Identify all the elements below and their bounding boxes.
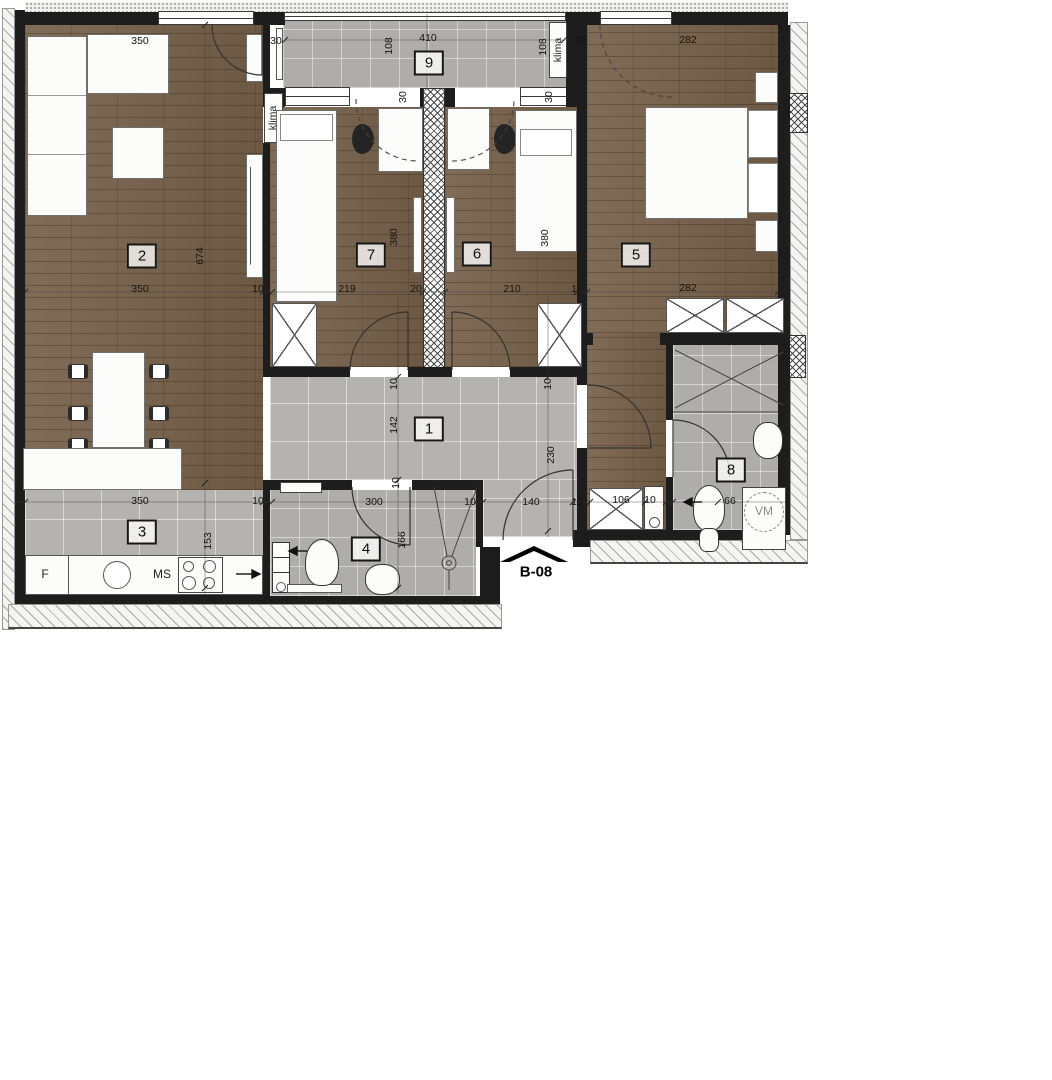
- entrance-marker-icon: [500, 546, 568, 562]
- wall-shelf-bedroom7: [413, 197, 422, 273]
- exterior-stipple-top: [25, 2, 788, 12]
- floor-plan-canvas: B-08 35030108410108302823030674380380350…: [0, 0, 1052, 1080]
- dimension-label: 210: [503, 283, 521, 295]
- annotation-label: klima: [552, 38, 564, 63]
- wall-bedrooms-south-3: [510, 367, 587, 377]
- wall-living-east-upper: [263, 25, 270, 93]
- annotation-label: F: [41, 567, 48, 581]
- dimension-label: 350: [131, 283, 149, 295]
- dimension-label: 282: [679, 34, 697, 46]
- unit-code-label: B-08: [520, 564, 553, 581]
- nightstand-lower: [755, 220, 778, 252]
- room-number-label: 2: [127, 244, 157, 269]
- shaft-crosshatch-right-upper: [788, 93, 808, 133]
- toilet-bathroom8-icon: [693, 485, 725, 531]
- dimension-label: 30: [543, 91, 555, 103]
- towel-rail: [280, 482, 322, 493]
- wall-exterior-top-2: [252, 12, 285, 25]
- exterior-wall-hatch-bottom-left: [8, 604, 502, 629]
- wardrobe-bedroom5-b: [726, 298, 784, 333]
- toilet4-base: [287, 584, 342, 593]
- exterior-wall-hatch-left: [2, 8, 15, 630]
- dimension-label: 10: [252, 283, 264, 295]
- shaft-wall-between-bedrooms: [423, 88, 445, 377]
- dimension-label: 153: [202, 532, 214, 550]
- dimension-label: 380: [388, 228, 400, 246]
- toilet8-pedestal: [699, 528, 719, 552]
- dimension-label: 30: [270, 35, 282, 47]
- tv-cabinet-upper: [246, 34, 263, 82]
- room-number-label: 1: [414, 417, 444, 442]
- dimension-label: 108: [537, 38, 549, 56]
- tv-unit: [246, 154, 263, 278]
- toilet-bathroom4-icon: [305, 539, 339, 586]
- window-bedroom7-balcony: [285, 87, 350, 106]
- wall-shelf-bedroom6: [446, 197, 455, 273]
- dimension-label: 66: [724, 495, 736, 507]
- annotation-label: MS: [153, 567, 171, 581]
- kitchen-island: [23, 448, 182, 490]
- wall-vestibule-east: [577, 448, 587, 537]
- counter-divider: [68, 555, 69, 595]
- dimension-label: 219: [338, 283, 356, 295]
- dimension-label: 108: [383, 37, 395, 55]
- kitchen-sink-icon: [103, 561, 131, 589]
- dimension-label: 10: [390, 477, 402, 489]
- dimension-label: 350: [131, 495, 149, 507]
- burner-icon: [183, 561, 194, 572]
- wall-exterior-left: [15, 10, 25, 604]
- sink-icon: [649, 517, 660, 528]
- burner-icon: [182, 576, 196, 590]
- wall-bottom-kitchen: [15, 595, 270, 604]
- dimension-label: 10: [542, 378, 554, 390]
- vestibule-floor: [483, 480, 577, 537]
- dimension-label: 674: [194, 247, 206, 265]
- dimension-label: 140: [522, 496, 540, 508]
- stove-icon: [178, 557, 223, 593]
- desk-bedroom6: [447, 108, 490, 170]
- dimension-label: 10: [388, 378, 400, 390]
- dimension-label: 282: [679, 282, 697, 294]
- dimension-label: 142: [388, 416, 400, 434]
- dining-chair: [149, 406, 169, 421]
- wall-bath8-west-upper: [666, 345, 673, 420]
- wall-bath8-west-lower: [666, 477, 673, 530]
- dimension-label: 300: [365, 496, 383, 508]
- washbasin-bathroom8-icon: [753, 422, 783, 459]
- wall-exterior-right: [778, 25, 790, 535]
- kitchen-counter: [25, 555, 263, 595]
- dining-chair: [68, 364, 88, 379]
- wall-living-east-mid: [263, 143, 270, 377]
- pillow: [748, 110, 778, 158]
- cabinet-corridor: [644, 486, 664, 530]
- pillow: [520, 129, 572, 156]
- dining-table: [92, 352, 145, 448]
- pillow: [280, 114, 333, 141]
- dimension-label: 410: [419, 32, 437, 44]
- dimension-label: 30: [397, 91, 409, 103]
- room-number-label: 5: [621, 243, 651, 268]
- burner-icon: [203, 577, 215, 589]
- apartment-floor-plan: B-08 35030108410108302823030674380380350…: [0, 0, 1052, 1080]
- wall-bath4-west: [263, 490, 270, 604]
- dimension-label: 350: [131, 35, 149, 47]
- room-number-label: 4: [351, 537, 381, 562]
- dimension-label: 10: [252, 495, 264, 507]
- double-bed-bedroom5: [645, 107, 748, 219]
- wall-bedrooms-south-1: [263, 367, 350, 377]
- wall-bedroom5-south: [660, 333, 786, 345]
- dimension-label: 10: [571, 283, 583, 295]
- wall-bath4-east: [476, 480, 483, 547]
- desk-bedroom7: [378, 108, 423, 172]
- window-living-room: [158, 11, 254, 25]
- pillow: [748, 163, 778, 213]
- window-bedroom5: [600, 11, 672, 25]
- dimension-label: 10: [571, 496, 583, 508]
- dimension-label: 166: [396, 531, 408, 549]
- coffee-table: [112, 127, 164, 179]
- balcony-glazing: [284, 12, 566, 21]
- wall-corridor-north-stub: [587, 333, 593, 345]
- dining-chair: [149, 364, 169, 379]
- wardrobe-bedroom6: [537, 303, 582, 367]
- dimension-label: 30: [575, 35, 587, 47]
- dimension-label: 106: [612, 494, 630, 506]
- wall-exterior-top-4: [670, 12, 788, 25]
- drain-icon: [276, 582, 286, 592]
- annotation-label: klima: [267, 106, 279, 131]
- bed-bedroom7: [276, 110, 337, 302]
- burner-icon: [203, 560, 216, 573]
- wall-bedrooms-south-2: [408, 367, 452, 377]
- wardrobe-bedroom7: [272, 303, 317, 367]
- wall-bottom-bath4: [263, 596, 482, 604]
- room-number-label: 7: [356, 243, 386, 268]
- annotation-label: VM: [755, 504, 773, 518]
- room-number-label: 3: [127, 520, 157, 545]
- room-number-label: 9: [414, 51, 444, 76]
- dimension-label: 20: [410, 283, 422, 295]
- room-number-label: 8: [716, 458, 746, 483]
- wall-exterior-top-1: [15, 12, 160, 25]
- dimension-label: 10: [644, 494, 656, 506]
- sofa-vertical: [27, 36, 87, 216]
- wardrobe-bedroom5-a: [666, 298, 724, 333]
- room-number-label: 6: [462, 242, 492, 267]
- wall-bath4-north-2: [412, 480, 482, 490]
- dimension-label: 10: [464, 496, 476, 508]
- nightstand-upper: [755, 72, 778, 103]
- dimension-label: 230: [545, 446, 557, 464]
- sofa-horizontal: [87, 34, 169, 94]
- wall-entrance-recess-left: [480, 547, 500, 604]
- washbasin-bathroom4-icon: [365, 564, 400, 595]
- dining-chair: [68, 406, 88, 421]
- washing-machine-box: [742, 487, 786, 550]
- dimension-label: 380: [539, 229, 551, 247]
